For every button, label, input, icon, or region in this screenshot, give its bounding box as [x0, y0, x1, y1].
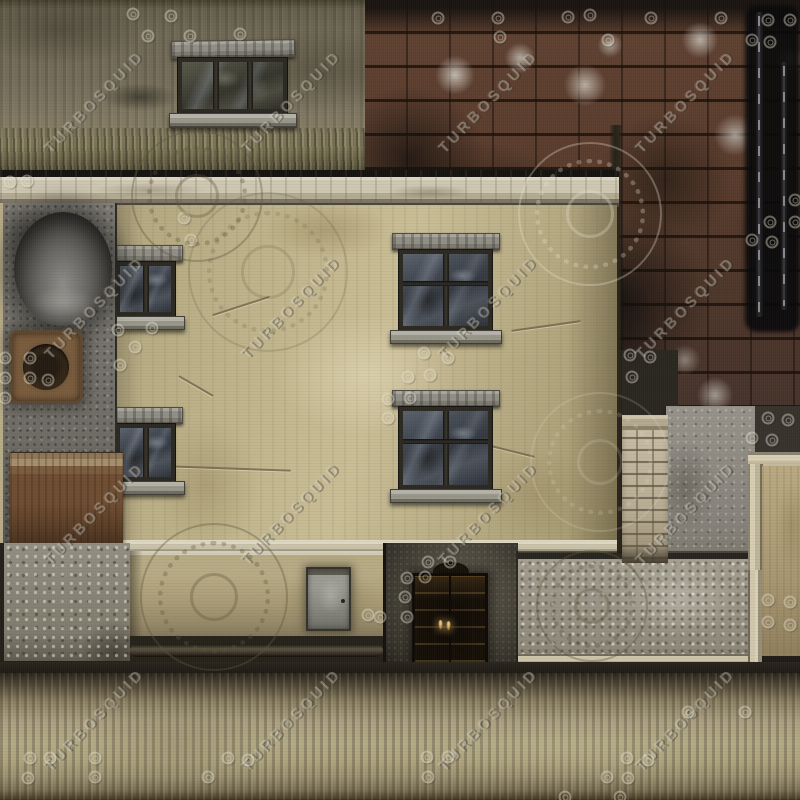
- texture-atlas-canvas: TURBOSQUIDTURBOSQUIDTURBOSQUIDTURBOSQUID…: [0, 0, 800, 800]
- stone-pillar: [622, 415, 668, 563]
- metal-rod: [780, 62, 788, 310]
- window-top-barred: [176, 40, 290, 128]
- right-tan-strip: [762, 466, 800, 656]
- grass-moss-band: [0, 128, 365, 174]
- window-left-upper: [114, 245, 178, 330]
- step-molding-vertical: [748, 464, 763, 570]
- window-center-upper: [397, 233, 495, 344]
- window-center-lower: [397, 390, 495, 503]
- right-concrete-step: [663, 406, 757, 572]
- rust-beam: [10, 452, 123, 543]
- window-divider: [403, 281, 488, 286]
- window-lintel: [392, 233, 500, 250]
- main-beige-wall: [116, 205, 617, 542]
- pillar-cap: [622, 415, 668, 430]
- wall-crack: [212, 296, 270, 316]
- metal-door: [306, 567, 351, 631]
- speckled-block: [0, 543, 130, 667]
- window-sill: [114, 481, 185, 495]
- window-mullion: [143, 266, 149, 312]
- rod-highlight: [783, 66, 785, 306]
- window-glass: [116, 424, 175, 481]
- ornate-paneled-door: [412, 573, 488, 665]
- window-glass: [399, 250, 492, 330]
- dark-dome: [14, 212, 112, 326]
- window-sill: [169, 113, 297, 128]
- window-lintel: [171, 39, 295, 59]
- round-vent: [9, 330, 83, 404]
- bottom-grass-strip: [0, 673, 800, 800]
- door-lamp: [446, 621, 451, 631]
- right-dark-gap: [755, 406, 800, 455]
- window-sill: [390, 330, 502, 344]
- window-lintel: [114, 407, 183, 424]
- pillar-grime: [622, 545, 668, 563]
- panel-frame-right: [748, 553, 762, 667]
- wall-crack: [511, 320, 581, 332]
- cornice: [0, 170, 619, 207]
- rod-highlight: [758, 16, 760, 313]
- window-mullion: [143, 428, 149, 477]
- window-lintel: [392, 390, 500, 407]
- window-mullion: [247, 62, 253, 109]
- window-lintel: [114, 245, 183, 262]
- window-mullion: [443, 254, 449, 326]
- window-divider: [403, 439, 488, 444]
- soot-smudge-panel: [745, 5, 800, 332]
- door-lamp: [438, 620, 443, 630]
- wall-crack: [178, 375, 214, 397]
- window-glass: [116, 262, 175, 316]
- window-left-lower: [114, 407, 178, 495]
- window-glass: [399, 407, 492, 489]
- metal-rod: [755, 12, 764, 317]
- window-glass: [178, 58, 287, 113]
- window-mullion: [443, 411, 449, 485]
- swirl-concrete-panel: [518, 553, 762, 667]
- window-sill: [114, 316, 185, 330]
- window-mullion: [213, 62, 219, 109]
- pipe: [130, 644, 383, 657]
- window-sill: [390, 489, 502, 503]
